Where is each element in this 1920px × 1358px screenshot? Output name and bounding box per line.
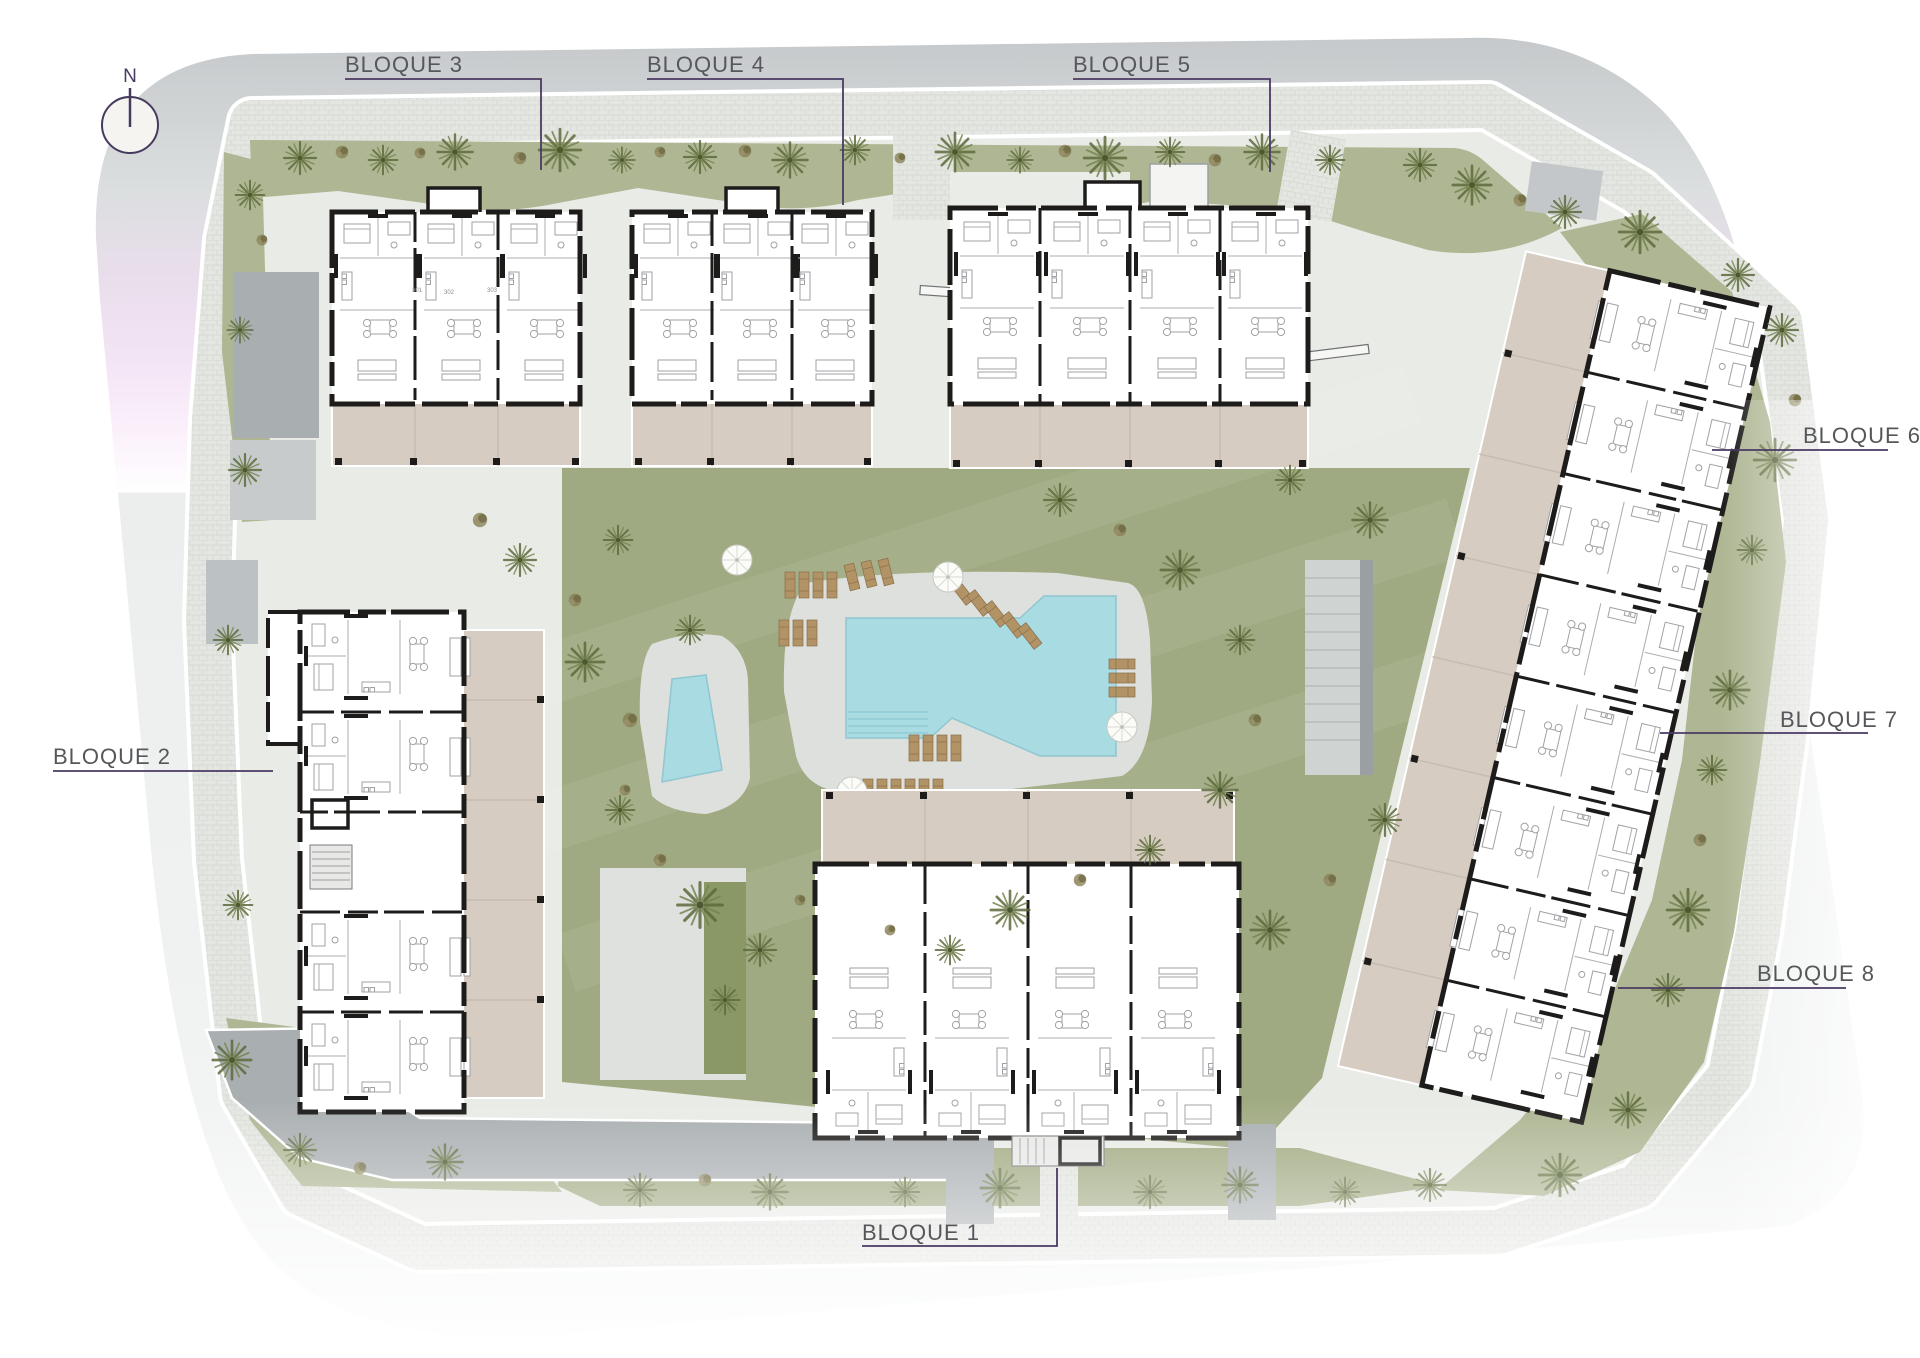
building-bloque-4 bbox=[632, 188, 878, 466]
svg-text:BLOQUE 7: BLOQUE 7 bbox=[1780, 707, 1898, 732]
unit-number: 302 bbox=[444, 290, 455, 296]
svg-text:BLOQUE 2: BLOQUE 2 bbox=[53, 744, 171, 769]
parasol-icon bbox=[1107, 712, 1137, 742]
svg-text:BLOQUE 6: BLOQUE 6 bbox=[1803, 423, 1920, 448]
svg-text:BLOQUE 8: BLOQUE 8 bbox=[1757, 961, 1875, 986]
svg-text:BLOQUE 4: BLOQUE 4 bbox=[647, 52, 765, 77]
site-plan-page: 301 302 303 bbox=[0, 0, 1920, 1358]
parasol-icon bbox=[933, 562, 963, 592]
svg-text:BLOQUE 5: BLOQUE 5 bbox=[1073, 52, 1191, 77]
building-bloque-3: 301 302 303 bbox=[332, 188, 587, 466]
svg-text:BLOQUE 3: BLOQUE 3 bbox=[345, 52, 463, 77]
parasol-icon bbox=[722, 545, 752, 575]
unit-number: 303 bbox=[487, 288, 498, 294]
compass: N bbox=[102, 66, 158, 153]
building-bloque-2 bbox=[268, 612, 544, 1112]
pool-pavilion bbox=[1150, 164, 1208, 210]
courtyard-ramp bbox=[1305, 560, 1373, 775]
building-bloque-5 bbox=[950, 164, 1308, 468]
svg-text:BLOQUE 1: BLOQUE 1 bbox=[862, 1220, 980, 1245]
site-plan-drawing: 301 302 303 bbox=[0, 0, 1920, 1358]
driveway-west bbox=[233, 272, 319, 438]
planter-strip bbox=[704, 882, 746, 1074]
compass-north-label: N bbox=[123, 66, 137, 87]
unit-number: 301 bbox=[412, 288, 423, 294]
